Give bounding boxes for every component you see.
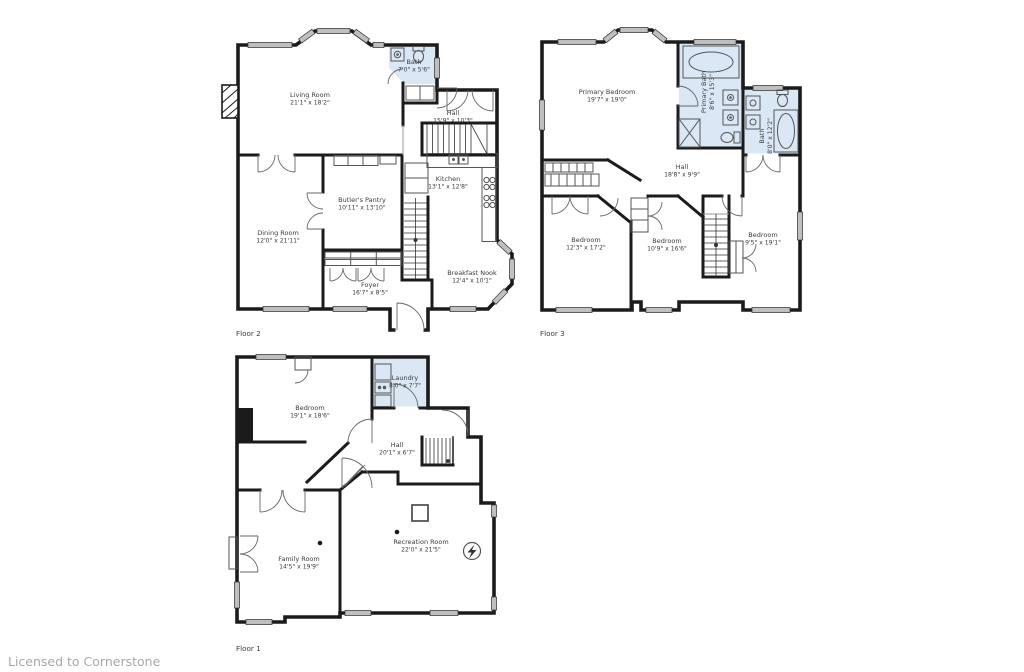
- room-dims-kitchen: 13'1" x 12'8": [428, 184, 468, 191]
- room-dims-primary: 19'7" x 19'0": [587, 97, 627, 104]
- room-dims-bedroom-mid: 10'9" x 16'6": [647, 246, 687, 253]
- room-dims-dining: 12'0" x 21'11": [256, 238, 300, 245]
- room-label-bedroom-mid: Bedroom: [652, 237, 681, 245]
- floor1-chimney: [237, 408, 253, 442]
- room-label-dining: Dining Room: [257, 229, 299, 237]
- room-dims-pantry: 10'11" x 13'10": [338, 205, 386, 212]
- watermark: Licensed to Cornerstone: [8, 654, 161, 669]
- floor2-title: Floor 2: [236, 329, 261, 338]
- floor1-stairs: [426, 438, 450, 464]
- room-dims-bath3: 8'0" x 12'2": [767, 118, 774, 154]
- room-label-hall3: Hall: [676, 163, 689, 171]
- room-label-kitchen: Kitchen: [436, 175, 460, 183]
- room-label-nook: Breakfast Nook: [447, 269, 497, 277]
- room-label-foyer: Foyer: [361, 281, 379, 289]
- room-label-hall: Hall: [447, 109, 460, 117]
- room-dims-bedroom-right: 9'5" x 19'1": [745, 240, 781, 247]
- post-icon: [318, 541, 323, 546]
- room-dims-foyer: 16'7" x 8'5": [352, 290, 388, 297]
- room-dims-nook: 12'4" x 10'1": [452, 278, 492, 285]
- room-dims-living: 21'1" x 18'2": [290, 100, 330, 107]
- floorplan-page: Living Room 21'1" x 18'2" Bath 7'0" x 5'…: [0, 0, 1024, 672]
- entry-door-gap: [396, 327, 424, 334]
- room-label-hall1: Hall: [391, 441, 404, 449]
- floor3-title: Floor 3: [540, 329, 565, 338]
- floor2-fireplace: [222, 85, 238, 118]
- room-label-bath3: Bath: [758, 128, 766, 143]
- room-label-family: Family Room: [278, 555, 320, 563]
- room-dims-bath: 7'0" x 5'6": [398, 67, 430, 74]
- room-label-bedroom-right: Bedroom: [748, 231, 777, 239]
- floor3-plan: Primary Bedroom 19'7" x 19'0" Primary Ba…: [539, 27, 802, 338]
- room-dims-bedroom1: 19'1" x 18'6": [290, 413, 330, 420]
- floor3-footprint: [542, 30, 800, 310]
- room-label-pantry: Butler's Pantry: [338, 196, 386, 204]
- room-label-primary-bath: Primary Bath: [700, 71, 708, 113]
- room-dims-hall: 15'9" x 10'3": [433, 118, 473, 125]
- room-label-rec: Recreation Room: [393, 538, 448, 546]
- floor1-title: Floor 1: [236, 644, 261, 653]
- room-label-primary: Primary Bedroom: [579, 88, 636, 96]
- room-dims-hall3: 18'8" x 9'9": [664, 172, 700, 179]
- floor2-plan: Living Room 21'1" x 18'2" Bath 7'0" x 5'…: [222, 28, 515, 338]
- room-dims-bedroom-left: 12'3" x 17'2": [566, 245, 606, 252]
- floor1-footprint: [237, 357, 494, 622]
- room-dims-laundry: 8'0" x 7'7": [389, 383, 421, 390]
- room-label-bath: Bath: [406, 58, 421, 66]
- floor1-plan: Bedroom 19'1" x 18'6" Laundry 8'0" x 7'7…: [229, 354, 497, 653]
- room-dims-hall1: 20'1" x 6'7": [379, 450, 415, 457]
- room-dims-family: 14'5" x 19'9": [279, 564, 319, 571]
- room-dims-primary-bath: 8'6" x 15'3": [709, 74, 716, 110]
- room-label-bedroom1: Bedroom: [295, 404, 324, 412]
- room-label-bedroom-left: Bedroom: [571, 236, 600, 244]
- room-dims-rec: 22'0" x 21'5": [401, 547, 441, 554]
- floorplan-canvas: Living Room 21'1" x 18'2" Bath 7'0" x 5'…: [0, 0, 1024, 672]
- post-icon: [395, 530, 400, 535]
- room-label-laundry: Laundry: [392, 374, 419, 382]
- room-label-living: Living Room: [290, 91, 330, 99]
